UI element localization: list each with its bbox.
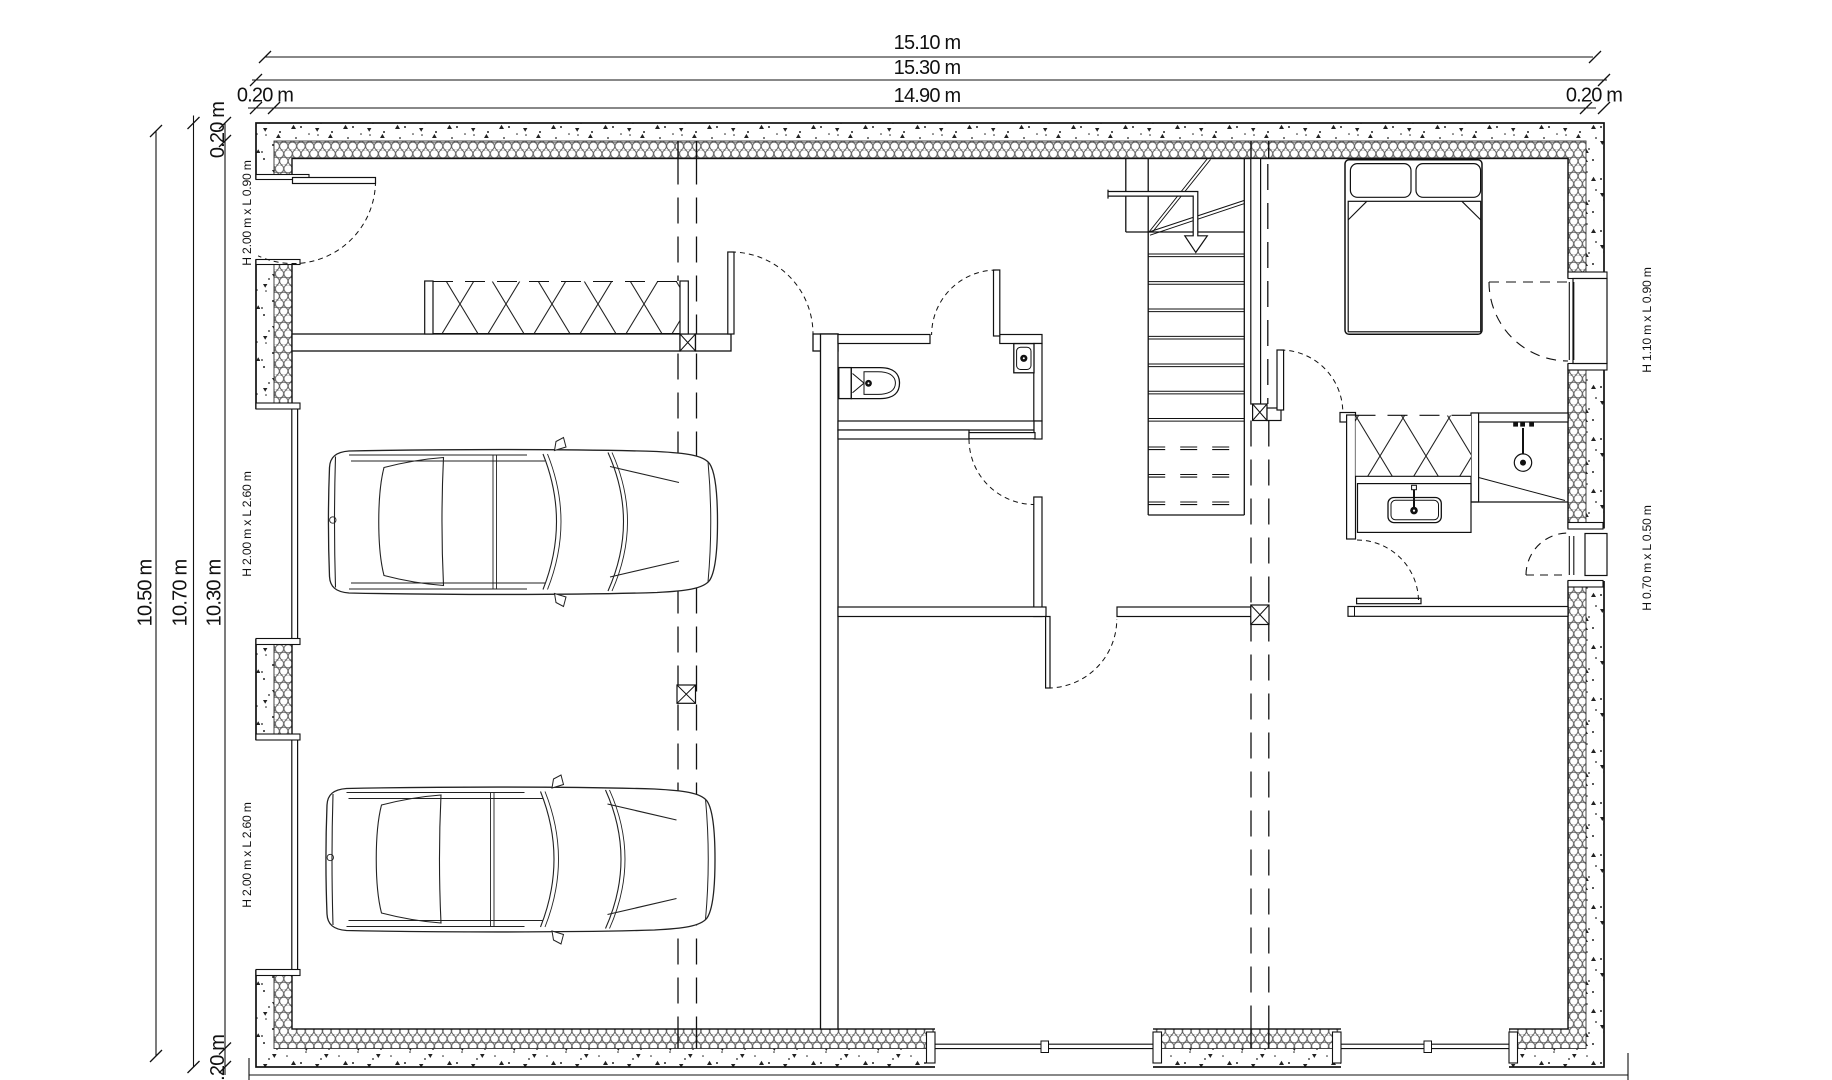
svg-text:14.90 m: 14.90 m: [894, 85, 961, 107]
svg-text:0.20 m: 0.20 m: [207, 102, 229, 158]
svg-text:0.20 m: 0.20 m: [237, 85, 293, 107]
svg-text:H 2.00 m x L 0.90 m: H 2.00 m x L 0.90 m: [240, 160, 254, 266]
svg-text:H 0.70 m x L 0.50 m: H 0.70 m x L 0.50 m: [1640, 505, 1654, 611]
svg-text:H 1.10 m x L 0.90 m: H 1.10 m x L 0.90 m: [1640, 267, 1654, 373]
svg-text:H 2.00 m x L 2.60 m: H 2.00 m x L 2.60 m: [240, 471, 254, 577]
svg-text:H 2.00 m x L 2.60 m: H 2.00 m x L 2.60 m: [240, 802, 254, 908]
svg-text:0.20 m: 0.20 m: [1566, 85, 1622, 107]
svg-text:15.30 m: 15.30 m: [894, 57, 961, 79]
svg-text:10.30 m: 10.30 m: [204, 560, 226, 627]
svg-text:0.20 m: 0.20 m: [207, 1035, 229, 1080]
svg-text:10.70 m: 10.70 m: [170, 560, 192, 627]
svg-text:15.10 m: 15.10 m: [894, 32, 961, 54]
svg-text:10.50 m: 10.50 m: [135, 560, 157, 627]
